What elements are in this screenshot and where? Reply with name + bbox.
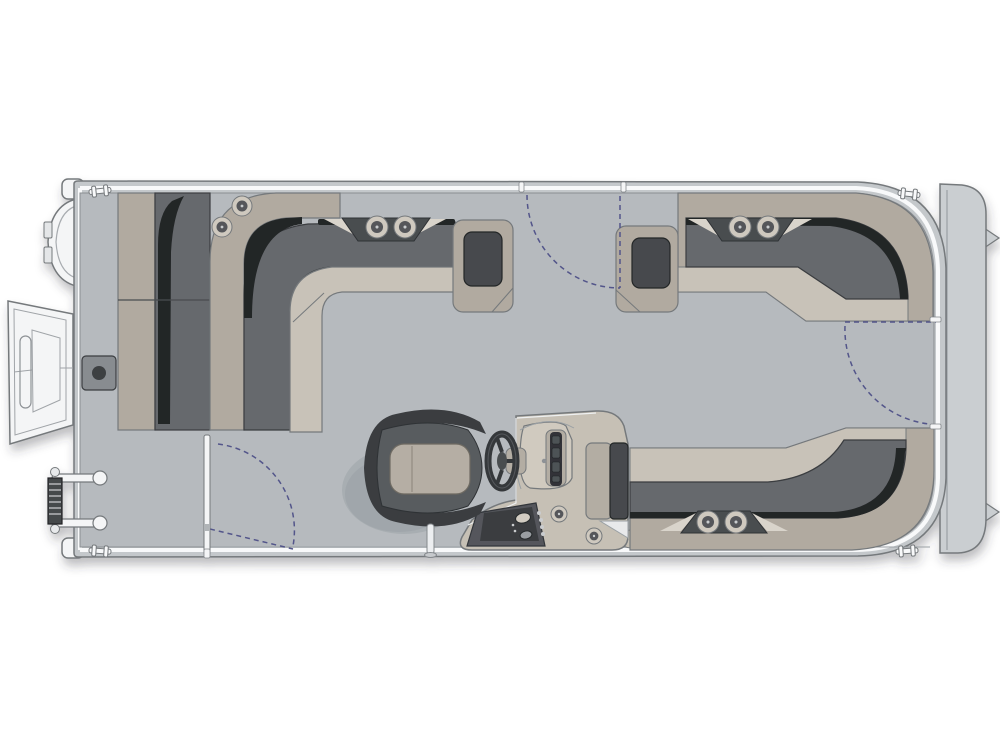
wheel-hub	[497, 452, 507, 470]
bow-couch-back	[118, 193, 155, 430]
deck-post	[427, 524, 434, 554]
cupholder	[729, 216, 751, 238]
cupholder	[232, 196, 252, 216]
gate-door-open	[204, 435, 210, 555]
cupholder	[586, 528, 602, 544]
boarding-ramp	[8, 301, 73, 444]
pontoon-floor-plan	[0, 0, 1000, 750]
gate-hinge	[204, 524, 210, 531]
armrest-inner	[610, 443, 628, 519]
chair-cushion	[390, 444, 470, 494]
ladder-steps	[48, 478, 62, 524]
floor-plan-stage	[0, 0, 1000, 750]
ladder-rail-end	[93, 516, 107, 530]
cupholder	[212, 217, 232, 237]
rail-post	[519, 182, 524, 192]
rail-post	[621, 182, 626, 192]
bow-bumper-bracket	[44, 247, 52, 263]
deck-post-base	[425, 553, 437, 558]
cupholder	[697, 511, 719, 533]
armrest-inner	[632, 238, 670, 288]
bow-exterior	[8, 179, 84, 558]
ladder-rail-end	[93, 471, 107, 485]
rail-post	[204, 549, 210, 558]
armrest	[586, 443, 612, 519]
cupholder	[725, 511, 747, 533]
bow-couch	[118, 193, 210, 430]
bow-side-gate-door	[204, 435, 210, 555]
cupholder	[757, 216, 779, 238]
rear-platform	[940, 184, 999, 553]
bow-bumper	[48, 199, 76, 286]
ladder-foot	[51, 468, 60, 477]
rail-post	[930, 317, 941, 322]
rail-post	[930, 424, 941, 429]
armrest-inner	[464, 232, 502, 286]
cupholder	[394, 216, 416, 238]
cupholder	[366, 216, 388, 238]
dash-button	[542, 459, 546, 463]
boat	[8, 179, 999, 558]
table-mount	[82, 356, 116, 390]
bow-bumper-bracket	[44, 222, 52, 238]
cupholder	[551, 506, 567, 522]
ladder-foot	[51, 525, 60, 534]
